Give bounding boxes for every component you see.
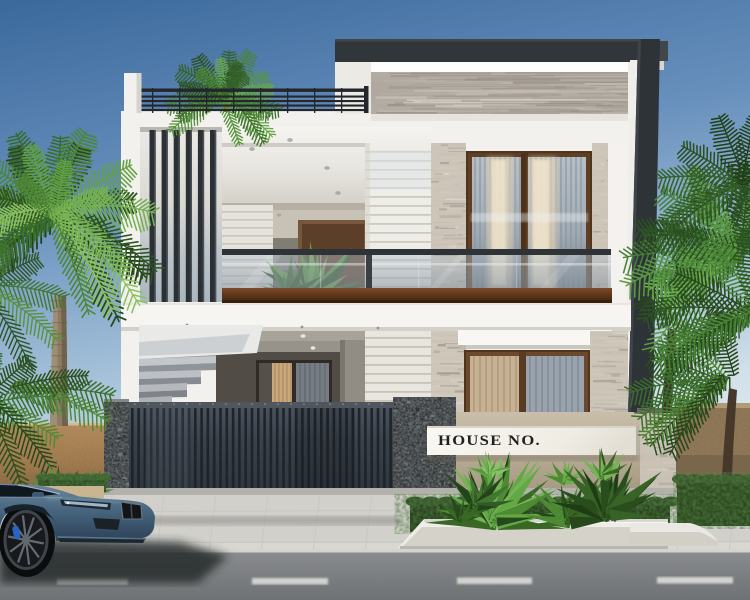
svg-text:HOUSE NO.: HOUSE NO. bbox=[438, 433, 541, 449]
